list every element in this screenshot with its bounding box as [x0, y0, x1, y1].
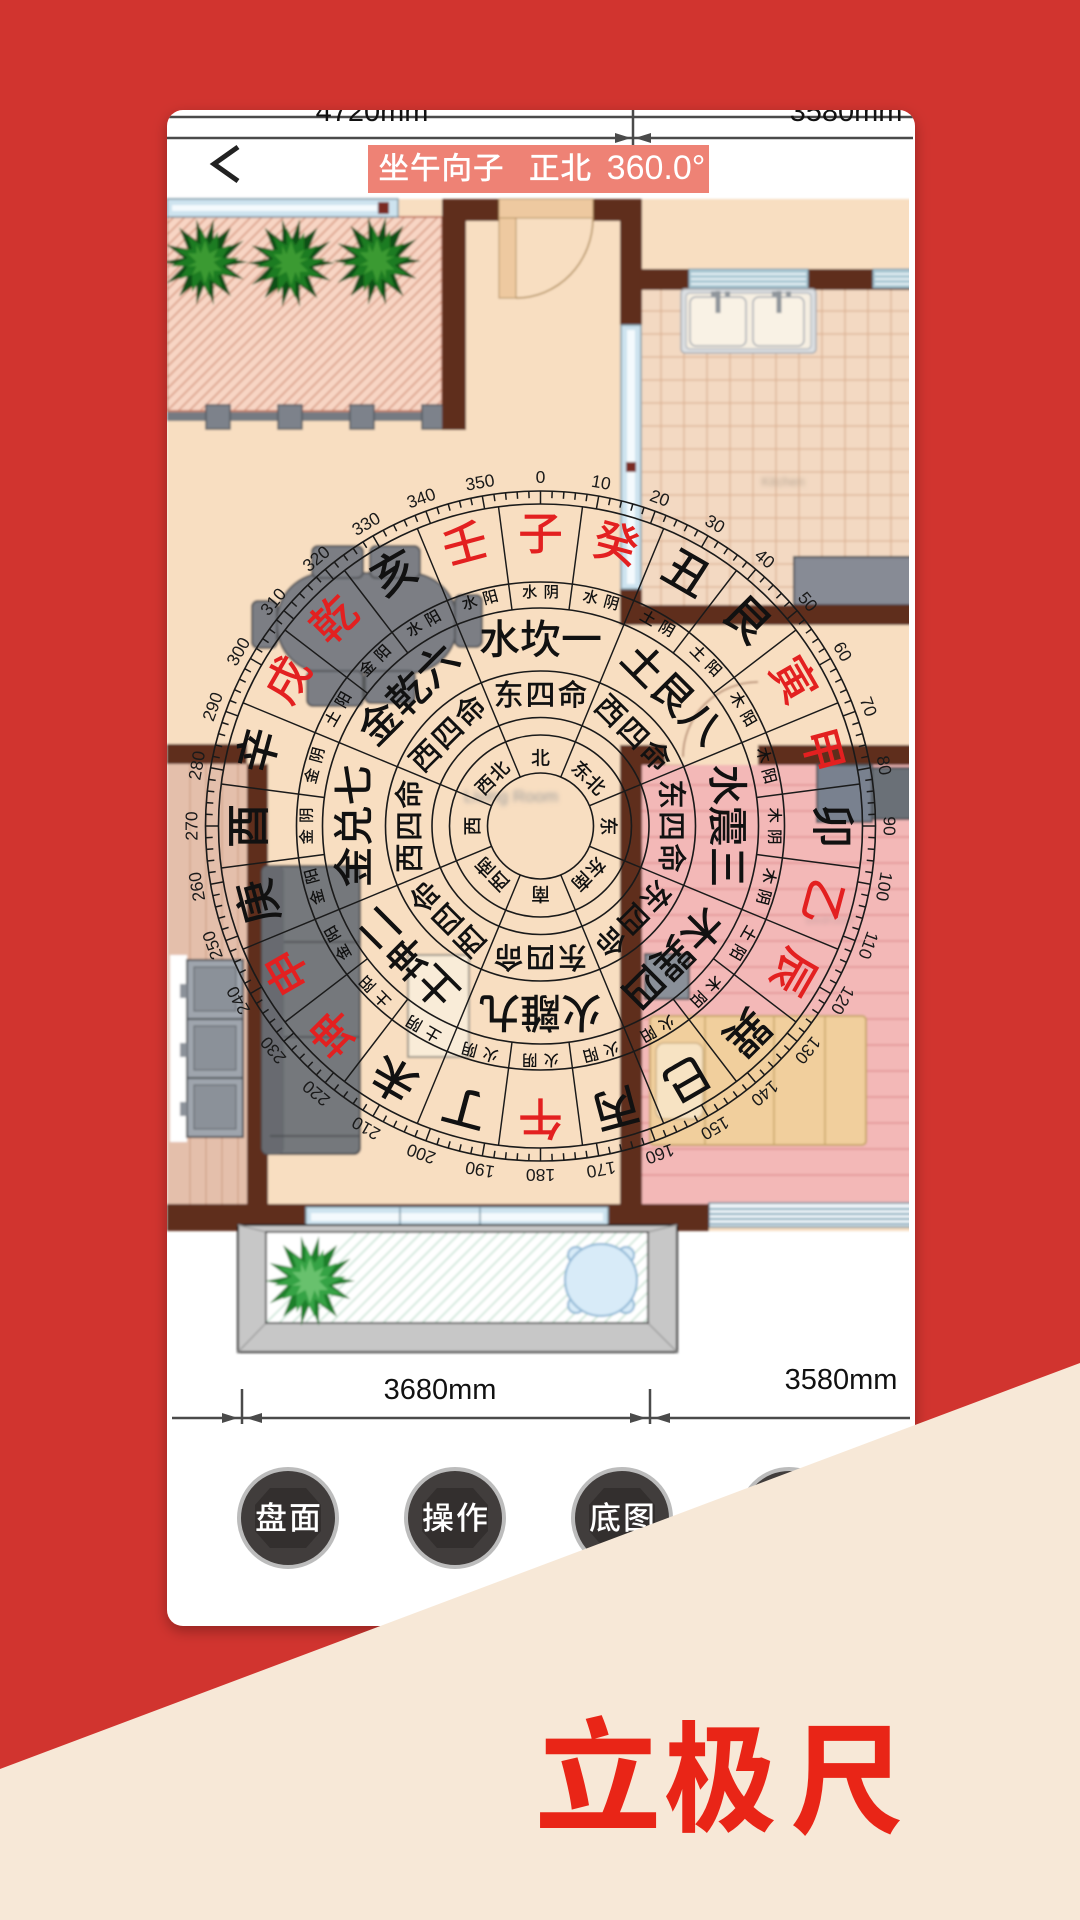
- svg-text:Kitchen: Kitchen: [761, 474, 804, 489]
- svg-text:180: 180: [526, 1165, 555, 1185]
- svg-text:10: 10: [590, 471, 613, 494]
- svg-text:3680mm: 3680mm: [384, 1374, 497, 1406]
- svg-text:Living Room: Living Room: [464, 787, 559, 806]
- svg-text:360.0°: 360.0°: [607, 149, 706, 187]
- svg-text:90: 90: [880, 816, 900, 836]
- svg-text:80: 80: [873, 754, 896, 777]
- svg-text:3580mm: 3580mm: [785, 1364, 898, 1396]
- svg-text:0: 0: [536, 467, 546, 487]
- svg-text:270: 270: [182, 811, 202, 840]
